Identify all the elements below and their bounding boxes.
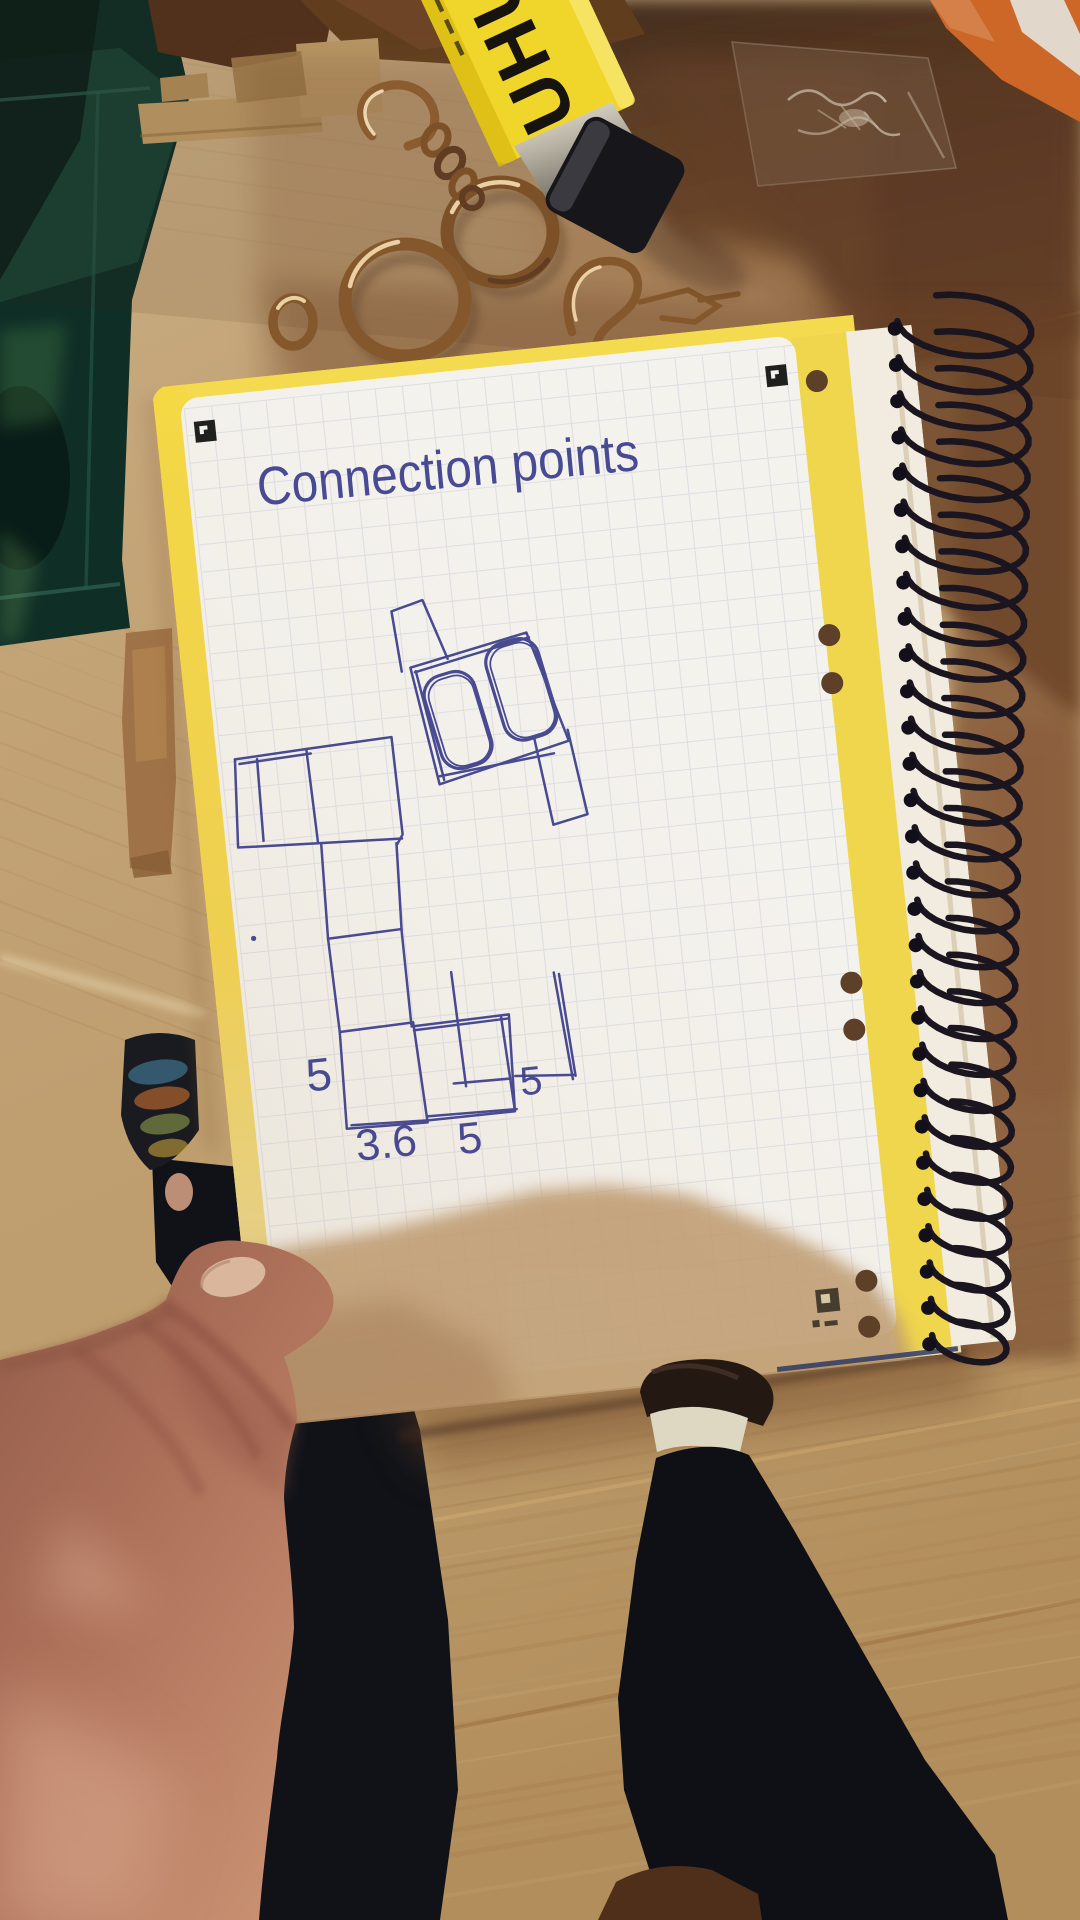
svg-text:5: 5 [303,1047,334,1101]
svg-text:5: 5 [455,1113,484,1164]
svg-text:3.6: 3.6 [353,1116,419,1171]
svg-text:5: 5 [518,1058,545,1104]
